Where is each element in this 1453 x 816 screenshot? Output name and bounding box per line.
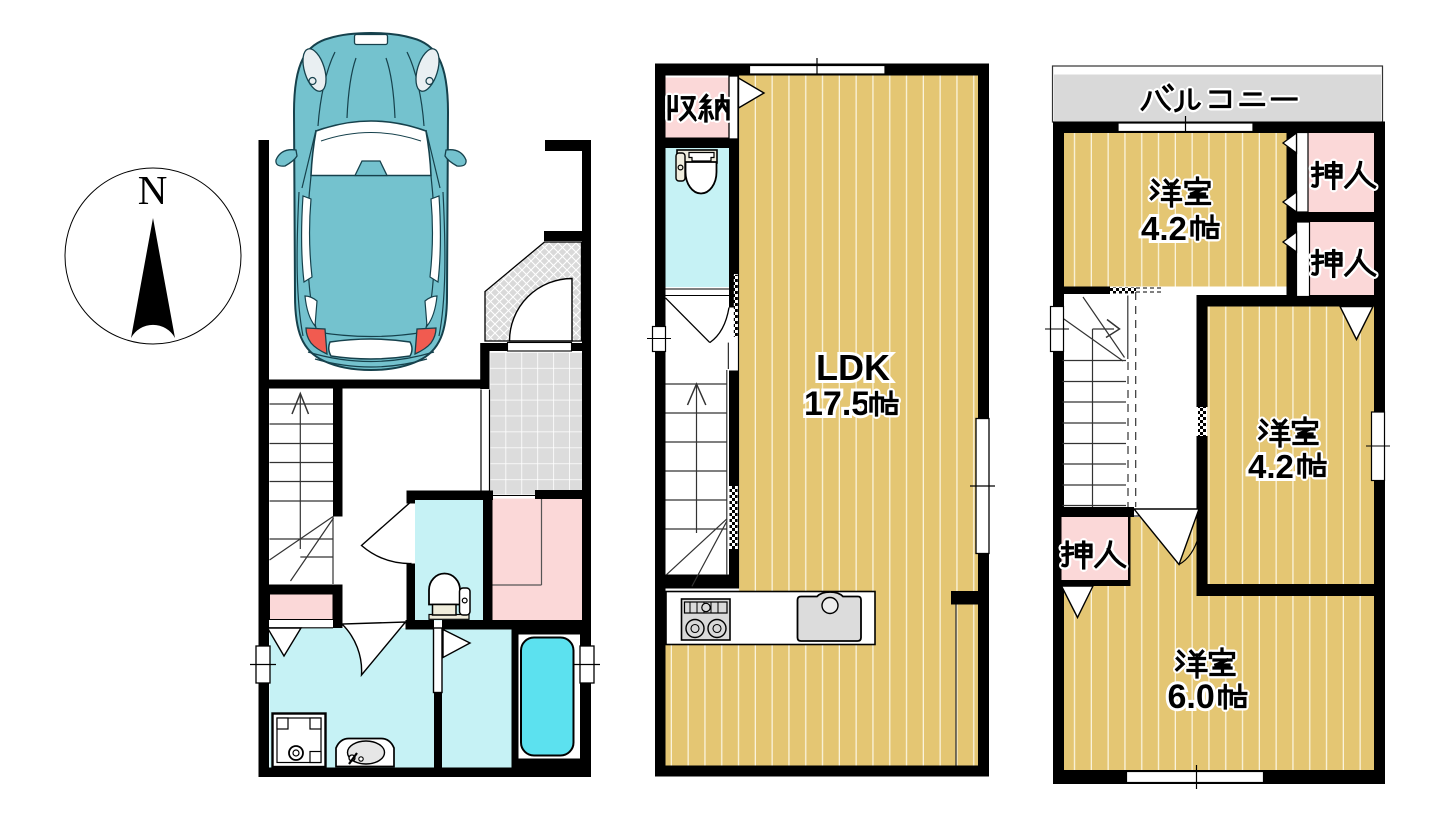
svg-text:4.2: 4.2 xyxy=(1141,210,1187,247)
svg-text:4.2: 4.2 xyxy=(1248,448,1294,485)
svg-text:17.5: 17.5 xyxy=(804,385,870,423)
svg-text:6.0: 6.0 xyxy=(1168,678,1215,716)
svg-text:N: N xyxy=(138,167,168,213)
svg-text:LDK: LDK xyxy=(816,347,890,388)
